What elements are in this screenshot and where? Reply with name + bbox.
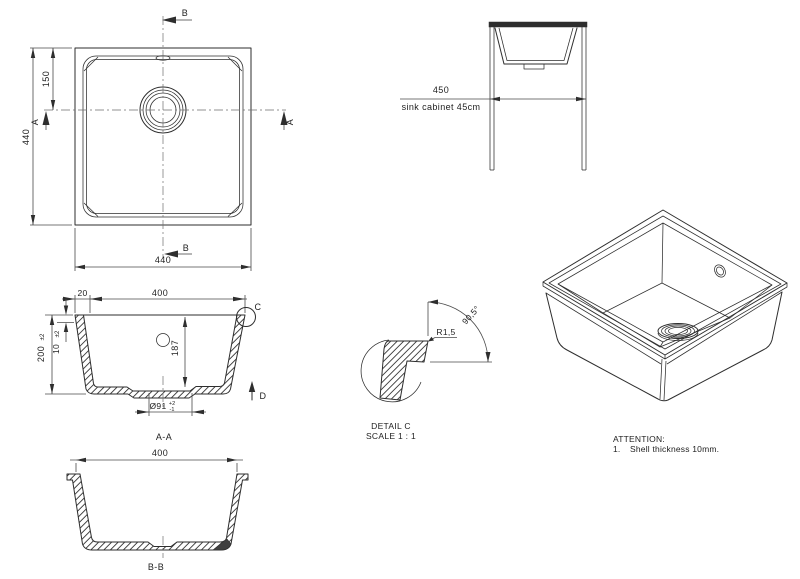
attention-item-text: Shell thickness 10mm. xyxy=(630,444,719,454)
dim-text-440-left: 440 xyxy=(21,129,31,145)
dim-text-400-bb: 400 xyxy=(152,448,168,458)
rim-inner-edge xyxy=(549,216,781,349)
dimension-arrowhead xyxy=(31,215,35,225)
section-wall-hatched xyxy=(67,474,248,550)
section-wall-hatched xyxy=(75,315,245,398)
dimension-400-bb: 400 xyxy=(70,448,243,472)
dimension-arrowhead xyxy=(137,410,149,414)
section-aa-title: A-A xyxy=(156,432,172,442)
section-bb-view: 400 B-B xyxy=(67,448,248,572)
overflow-hole-section xyxy=(157,334,170,347)
dim-text-187: 187 xyxy=(170,340,180,356)
dim-text-10: 10 xyxy=(51,344,61,354)
section-label-a-left: A xyxy=(30,119,40,125)
dimension-arrowhead xyxy=(50,315,54,325)
attention-title: ATTENTION: xyxy=(613,434,665,444)
rim-outer-edge xyxy=(543,210,787,355)
direction-d-label: D xyxy=(260,391,267,401)
section-label-b-top: B xyxy=(182,8,188,18)
sink-technical-drawing: A A B B 440 150 xyxy=(0,0,800,579)
dimension-arrowhead xyxy=(183,317,187,327)
dimension-arrowhead xyxy=(63,297,75,301)
dimension-arrowhead xyxy=(64,306,68,316)
countertop-slab xyxy=(489,22,587,27)
dimension-arrowhead xyxy=(76,458,86,462)
dimension-arrowhead xyxy=(192,410,204,414)
attention-item-number: 1. xyxy=(613,444,621,454)
dimension-450: 450 sink cabinet 45cm xyxy=(400,85,586,112)
dimension-20-400: 20 400 xyxy=(62,288,247,313)
top-view: A A B B 440 150 xyxy=(21,8,295,271)
dim-text-20: 20 xyxy=(77,288,87,298)
section-aa-view: 20 400 200 ±2 10 ±2 187 xyxy=(36,288,267,442)
cabinet-caption: sink cabinet 45cm xyxy=(402,102,481,112)
section-label-b-bottom: B xyxy=(183,243,189,253)
section-bb-title: B-B xyxy=(148,562,164,572)
dimension-arrowhead xyxy=(51,100,55,110)
drain-stub xyxy=(524,64,544,69)
dimension-arrowhead xyxy=(75,265,85,269)
dim-text-150: 150 xyxy=(41,71,51,87)
bowl-corner-edges xyxy=(558,223,772,347)
dim-text-200: 200 xyxy=(36,346,46,362)
detail-wall-hatched xyxy=(380,341,428,400)
drain-ring xyxy=(662,325,695,337)
dimension-arrowhead xyxy=(51,48,55,58)
dimension-arrowhead xyxy=(227,458,237,462)
dimension-arrowhead xyxy=(233,297,245,301)
attention-note: ATTENTION: 1. Shell thickness 10mm. xyxy=(613,434,719,454)
technical-drawing-page: A A B B 440 150 xyxy=(0,0,800,579)
dimension-arrowhead xyxy=(31,48,35,58)
dim-text-440-bottom: 440 xyxy=(155,255,171,265)
dim-tol-200: ±2 xyxy=(40,333,46,340)
detail-c-view: 90,5° R1,5 DETAIL C SCALE 1 : 1 xyxy=(361,300,492,442)
overflow-hole xyxy=(712,263,727,279)
isometric-view xyxy=(543,210,787,401)
detail-c-scale: SCALE 1 : 1 xyxy=(366,431,416,441)
dimension-150: 150 xyxy=(41,48,55,110)
dim-tol-10: ±2 xyxy=(55,330,61,337)
dimension-arrowhead xyxy=(576,97,586,101)
dimension-arrowhead xyxy=(50,384,54,394)
sink-bowl-inner xyxy=(499,28,573,61)
angle-label: 90,5° xyxy=(460,304,482,327)
angle-arrowhead xyxy=(428,300,438,305)
dim-text-400: 400 xyxy=(152,288,168,298)
leader-arrowhead xyxy=(428,337,434,342)
section-arrow-b-top-icon xyxy=(162,17,176,24)
section-arrow-a-left-icon xyxy=(43,111,50,125)
dimension-arrowhead xyxy=(90,297,102,301)
angle-arrowhead xyxy=(486,352,491,362)
dimension-10: 10 ±2 xyxy=(51,299,74,354)
dim-text-450: 450 xyxy=(433,85,449,95)
detail-c-marker-label: C xyxy=(255,302,262,312)
bowl-top-edge xyxy=(558,223,772,342)
detail-c-title: DETAIL C xyxy=(371,421,411,431)
front-corner-seam xyxy=(660,359,666,400)
body-silhouette xyxy=(546,292,782,401)
section-label-a-right: A xyxy=(285,119,295,125)
dimension-arrowhead xyxy=(183,377,187,387)
rim-thickness-edge xyxy=(543,282,787,359)
direction-arrow-d-icon xyxy=(249,381,255,392)
dim-text-drain: Ø91 xyxy=(150,401,167,411)
direction-arrow-d: D xyxy=(249,381,267,401)
dimension-arrowhead xyxy=(64,323,68,333)
dimension-arrowhead xyxy=(490,97,500,101)
dimension-arrowhead xyxy=(241,265,251,269)
radius-label: R1,5 xyxy=(436,327,455,337)
dim-tol-drain-minus: -1 xyxy=(170,407,175,413)
cabinet-view: 450 sink cabinet 45cm xyxy=(400,22,587,170)
dimension-187: 187 xyxy=(170,317,187,387)
